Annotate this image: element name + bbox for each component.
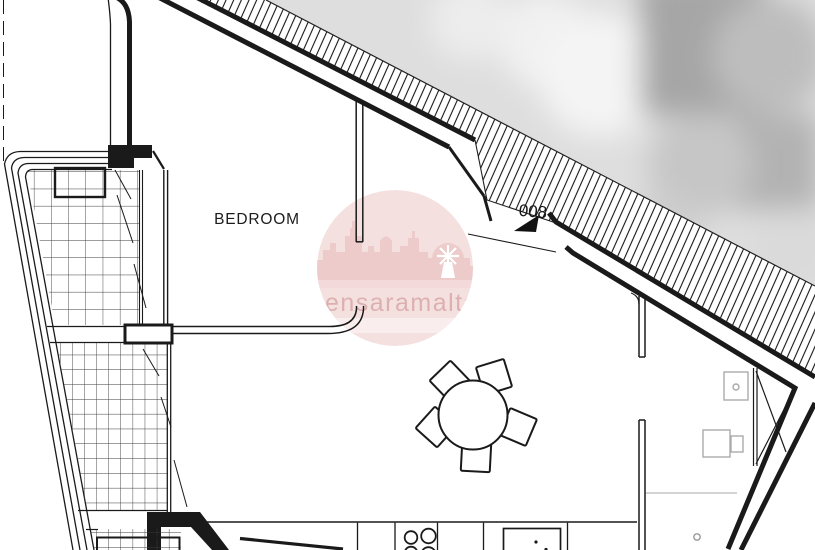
- dining-table: [439, 381, 508, 450]
- faucet-dot: [534, 540, 537, 543]
- door-number-label: 008: [518, 201, 548, 222]
- floor-plan-svg: sensaramalta: [0, 0, 815, 550]
- window-jamb: [125, 325, 172, 343]
- watermark-band: [317, 280, 473, 288]
- watermark-text: sensaramalta: [311, 289, 479, 317]
- floor-plan-canvas: sensaramalta: [0, 0, 815, 550]
- bedroom-label: BEDROOM: [214, 211, 300, 228]
